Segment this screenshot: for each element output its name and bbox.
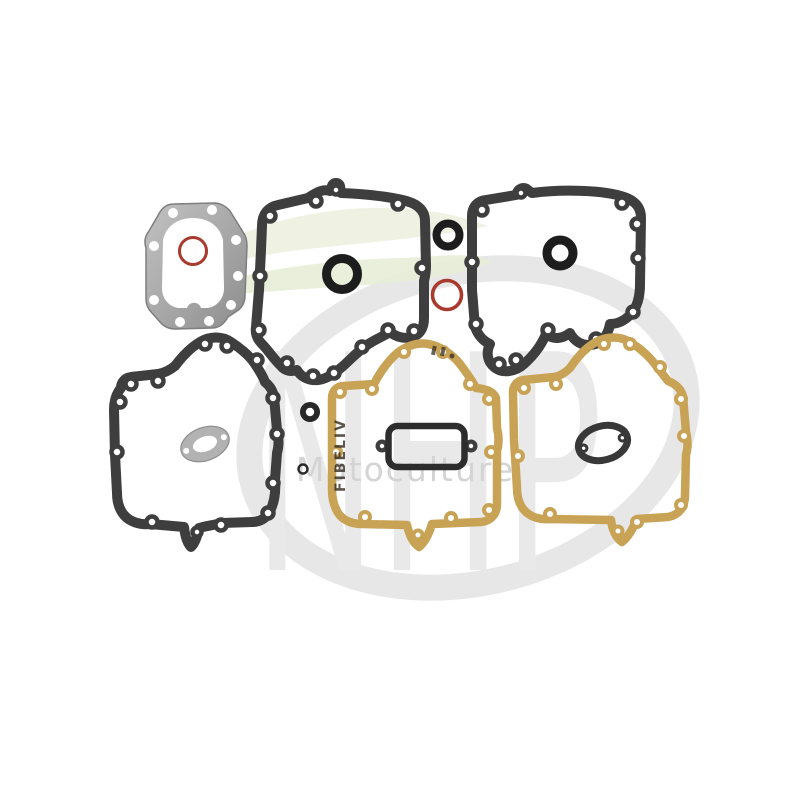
gasket-set-product-photo: NHP Motoculture	[0, 0, 800, 800]
grommet-small	[300, 402, 320, 422]
oil-seal-right	[547, 240, 573, 266]
o-ring-black	[437, 224, 460, 247]
exhaust-flange-gasket-gray	[176, 420, 234, 468]
gasket-brand-stamp: FIBELIV	[333, 418, 349, 492]
cylinder-head-gasket	[145, 203, 247, 329]
photo-canvas: NHP Motoculture	[0, 0, 800, 800]
